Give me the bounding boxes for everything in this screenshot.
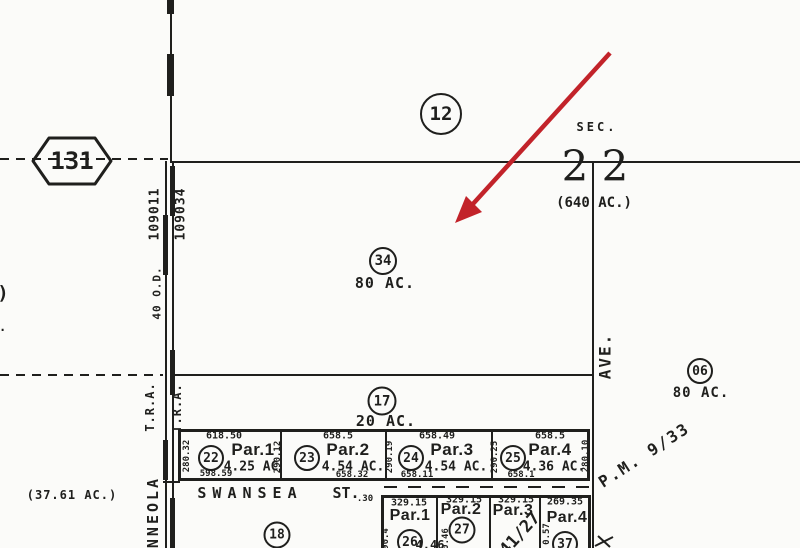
upper-par2-circle: 23 (294, 445, 320, 471)
upper-par3-acres: 4.54 AC. (425, 460, 488, 475)
upper-par3-side-dim: 290.19 (385, 441, 395, 474)
upper-par1-side-dim: 280.32 (182, 440, 192, 473)
parcel-18-circle: 18 (264, 522, 291, 548)
road-line-tick (163, 215, 168, 275)
tra-boundary-dashed (0, 374, 163, 376)
upper-par2-bottom-dim: 658.32 (336, 470, 369, 480)
parcel-06-circle: 06 (687, 358, 713, 384)
edge-fragment-c: C. (0, 320, 6, 334)
parcel-06-acreage: 80 AC. (673, 385, 730, 401)
upper-par1-circle: 22 (198, 445, 224, 471)
avenue-line (592, 163, 594, 548)
upper-par4-side-dim: 290.25 (490, 441, 500, 474)
upper-par3-bottom-dim: 658.11 (401, 470, 434, 480)
tra-label-left: T.R.A. (143, 382, 157, 431)
road-width-label: 40 O.D. (151, 266, 164, 319)
tra-label-right: T.R.A. (170, 383, 184, 432)
sec-label: SEC. (577, 120, 618, 134)
lower-par2-circle: 27 (449, 517, 476, 544)
section-acreage: (640 AC.) (556, 195, 632, 211)
upper-par3-circle: 24 (398, 445, 424, 471)
section-circle-12: 12 (420, 93, 462, 135)
pm-9-33-reference: P.M. 9/33 (595, 419, 693, 492)
corner-tick-mark (592, 533, 618, 548)
road-line-tick (170, 498, 175, 548)
upper-par3-name: Par.3 (430, 440, 473, 460)
swansea-offset: .30 (357, 494, 373, 504)
swansea-street-label: SWANSEA (197, 484, 302, 502)
red-arrow-head-icon (455, 196, 482, 223)
swansea-st-abbr: ST. (332, 484, 359, 502)
road-line-tick (163, 440, 168, 480)
parcel-divider (489, 498, 491, 548)
avenue-label: AVE. (596, 333, 615, 380)
parcel17-north-line (174, 374, 594, 376)
minneola-road-label: NNEOLA (144, 476, 162, 548)
lower-par4-top-dim: 269.35 (547, 497, 583, 508)
swansea-centerline (384, 486, 590, 488)
lower-par4-side-dim: 0.57 (542, 523, 552, 545)
edge-fragment-paren: ) (0, 282, 9, 304)
assessor-parcel-map: 131 12 SEC. 2 2 (640 AC.) 109011 109034 … (0, 0, 800, 548)
parcel-34-acreage: 80 AC. (355, 274, 415, 292)
lower-par4-name: Par.4 (547, 509, 588, 527)
upper-par4-bottom-dim: 658.1 (507, 470, 534, 480)
upper-par4-name: Par.4 (528, 440, 571, 460)
upper-par2-name: Par.2 (326, 440, 369, 460)
section-line (170, 161, 800, 163)
section-number: 2 2 (562, 142, 629, 191)
township-line-tick (167, 0, 174, 14)
tra-code-left: 109011 (148, 188, 163, 241)
parcel-17-acreage: 20 AC. (356, 412, 416, 430)
upper-par1-name: Par.1 (231, 440, 274, 460)
upper-par4-right-dim: 280.10 (581, 440, 591, 473)
parcel-34-circle: 34 (369, 247, 397, 275)
upper-par1-bottom-dim: 598.59 (200, 469, 233, 479)
township-line-tick (167, 54, 174, 96)
tra-code-right: 109034 (174, 188, 189, 241)
upper-par2-side-dim: 290.12 (273, 441, 283, 474)
route-number: 131 (50, 147, 93, 175)
left-remainder-acreage: (37.61 AC.) (27, 488, 117, 502)
lower-par1-side-dim: 90.4 (381, 528, 391, 548)
swansea-north-edge-stub (163, 481, 180, 483)
lower-par1-name: Par.1 (390, 507, 431, 525)
lower-par2-fragment: 4.46 (416, 538, 445, 548)
